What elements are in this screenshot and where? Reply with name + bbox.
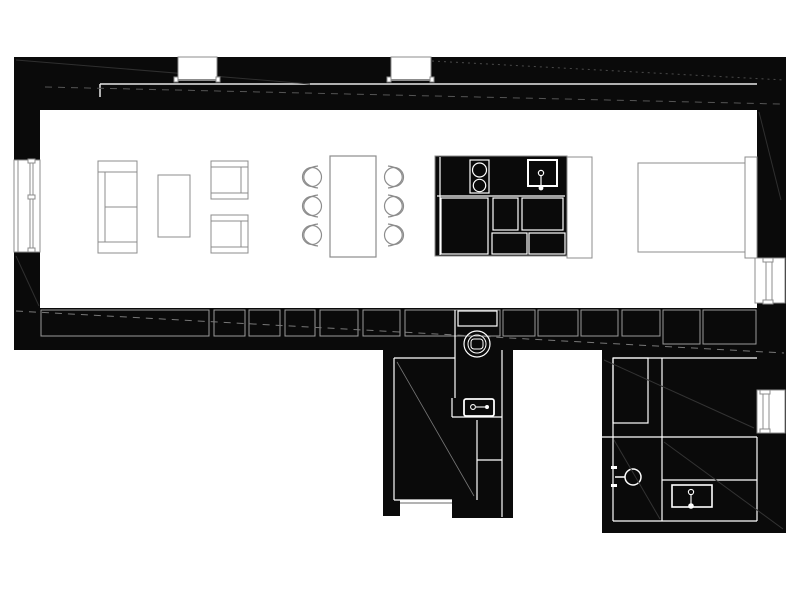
dining-chair-seat-r2 [385,197,404,216]
dining-chair-seat-r1 [385,168,404,187]
kitchen-island [435,156,567,256]
coffee-table [158,175,190,237]
floor-plan-svg [0,0,800,596]
window-right-upper [755,258,785,303]
dining-chair-seat-l3 [303,226,322,245]
window-top-mid-mark-a [387,77,391,82]
bed [638,163,745,252]
window-right-lower [757,390,785,433]
window-top-mid [391,57,431,80]
ensuite-block [602,350,786,533]
window-right-lower-mullion-bottom [760,429,770,433]
window-right-lower-mullion-top [760,390,770,394]
bathroom-block-foot-right [452,500,513,518]
shower-valve-b [611,484,617,487]
window-top-left-mark-b [216,77,220,82]
shower-valve-a [611,466,617,469]
ensuite-faucet-base [688,503,694,509]
dining-chair-seat-r3 [385,226,404,245]
window-right-upper-mullion-top [763,258,773,262]
window-top-left [178,57,217,80]
window-left-mullion-bottom [28,248,35,252]
washbasin-faucet-base [485,405,489,409]
window-top-mid-mark-b [430,77,434,82]
window-left-mullion-top [28,159,35,163]
window-left-mullion-mid [28,195,35,199]
sideboard [567,157,592,258]
kitchen-faucet-base [539,186,544,191]
dining-table [330,156,376,257]
window-top-left-mark-a [174,77,178,82]
window-right-upper-mullion-bottom [763,300,773,304]
dining-chair-seat-l2 [303,197,322,216]
floor-plan [0,0,800,596]
bathroom-block [383,350,513,500]
bathroom-block-foot-left [383,500,400,516]
dining-chair-seat-l1 [303,168,322,187]
bed-headboard [745,157,757,258]
